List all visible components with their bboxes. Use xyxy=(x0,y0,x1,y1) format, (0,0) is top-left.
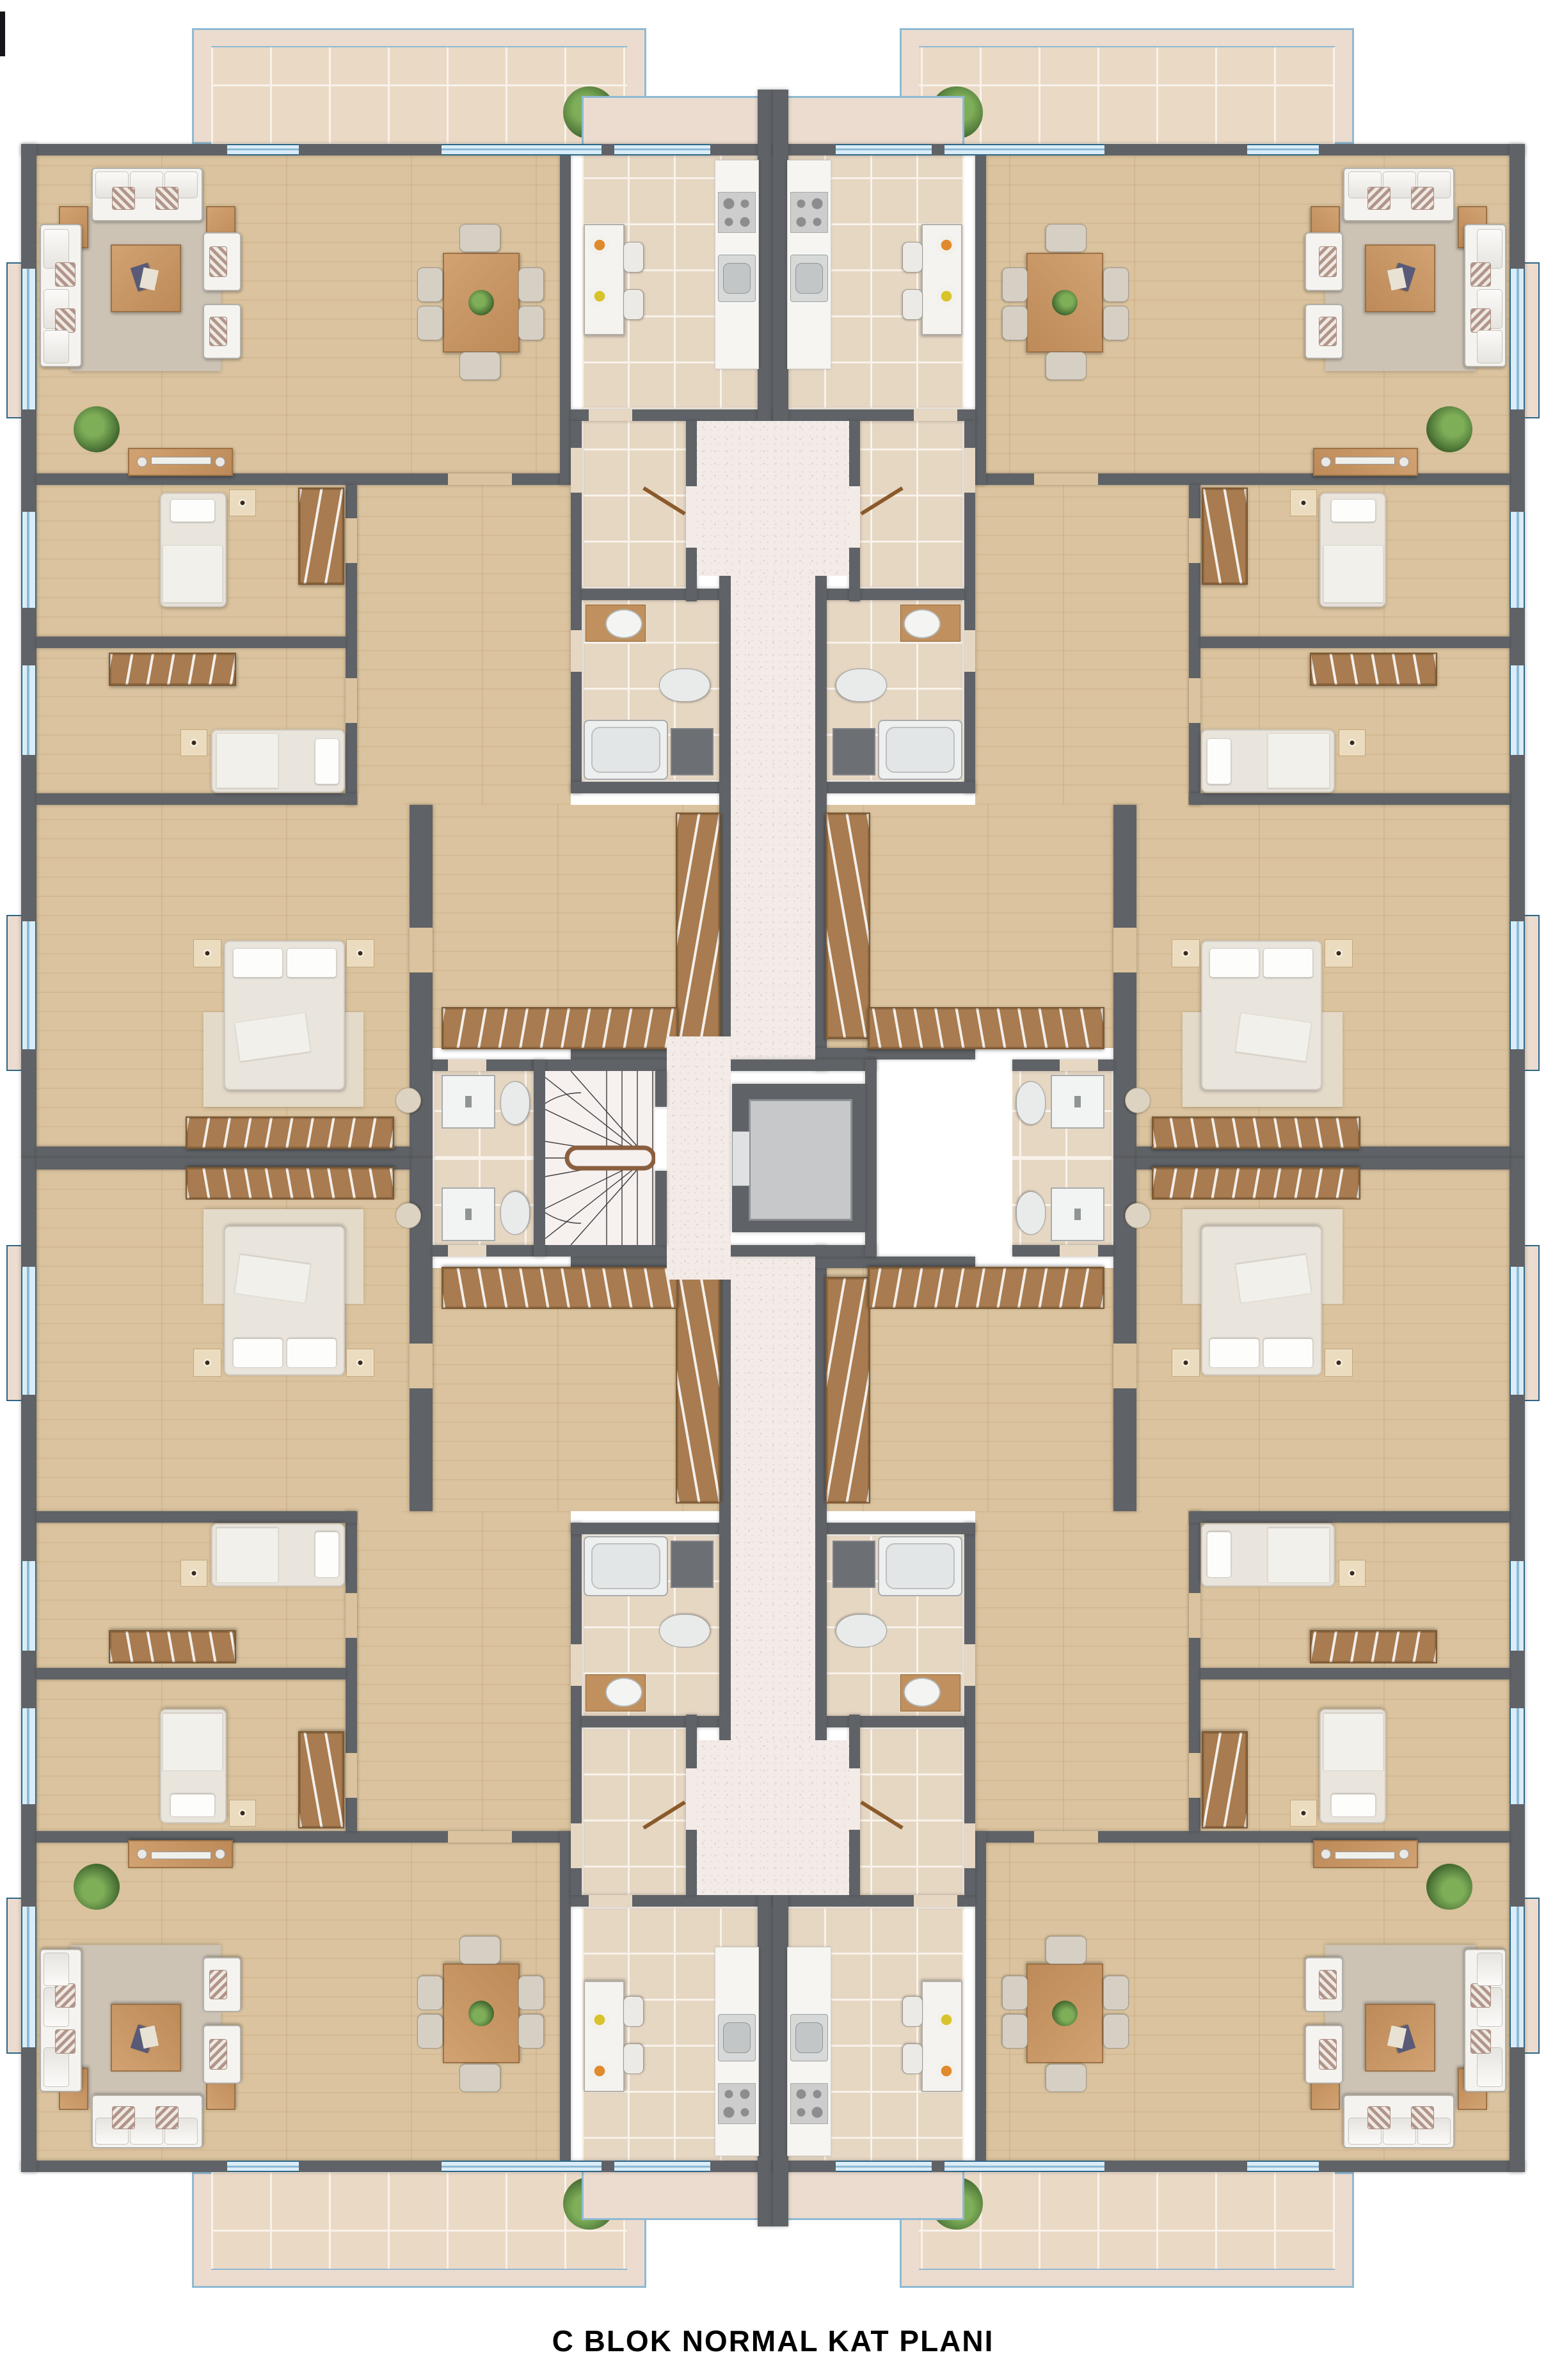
master-wardrobe xyxy=(1152,1116,1360,1149)
dining-chair xyxy=(1103,267,1129,302)
kitchen-sink-icon xyxy=(718,2014,756,2061)
dining-chair xyxy=(518,1976,544,2010)
double-bed xyxy=(224,940,345,1090)
wall-bedroom2-master xyxy=(1189,1511,1510,1523)
pillow xyxy=(1207,1532,1231,1578)
door-bedroom2 xyxy=(346,678,357,723)
wall-vestibule-bath xyxy=(582,589,719,600)
hall-floor xyxy=(357,485,571,805)
nightstand xyxy=(346,1349,374,1377)
sofa-chaise xyxy=(1464,224,1506,367)
living-plant-icon xyxy=(1426,406,1472,452)
tv-console xyxy=(1313,1840,1418,1868)
pillow xyxy=(1263,948,1313,978)
wall-kitchen-spine xyxy=(773,90,788,421)
double-bed xyxy=(224,1226,345,1376)
pillow xyxy=(233,948,283,978)
pillow xyxy=(315,1532,339,1578)
corridor-entry-hall-bottom xyxy=(697,1740,849,1895)
living-window-top-2 xyxy=(442,144,602,155)
kitchen-window xyxy=(614,144,710,155)
sofa-cushion xyxy=(44,330,69,363)
single-bed xyxy=(1319,1709,1386,1823)
wall-vestibule-bath xyxy=(582,1716,719,1727)
wall-corridor-west xyxy=(719,1245,731,1740)
tv-icon xyxy=(1335,457,1395,464)
hall-floor xyxy=(357,1511,571,1831)
apartment-entry-opening xyxy=(849,1768,860,1830)
dressing-wardrobe-horizontal xyxy=(442,1267,678,1309)
single-bed xyxy=(160,493,227,607)
sofa-pillow-striped xyxy=(1470,2029,1491,2054)
installation-shaft xyxy=(833,1541,875,1588)
blanket xyxy=(216,733,278,788)
installation-shaft xyxy=(833,728,875,775)
wall-living-kitchen xyxy=(975,1831,986,2161)
dressing-wardrobe-horizontal xyxy=(442,1007,678,1049)
fruit-plate-icon xyxy=(937,2061,956,2081)
wardrobe xyxy=(1202,488,1248,585)
wall-kitchen-spine xyxy=(773,1895,788,2226)
dining-chair xyxy=(459,2064,500,2092)
dining-chair xyxy=(1002,306,1028,340)
wall-living-kitchen xyxy=(560,1831,571,2161)
living-balcony-tile xyxy=(211,46,627,145)
floor-plan-canvas: C BLOK NORMAL KAT PLANI xyxy=(0,0,1546,2380)
sofa-three-seat xyxy=(92,168,203,221)
living-window-top-1 xyxy=(1247,144,1319,155)
wall-bedroom1-2 xyxy=(36,637,346,648)
dining-chair xyxy=(518,267,544,302)
staircase xyxy=(545,1071,655,1245)
armchair-pillow xyxy=(1319,1970,1337,1999)
kitchen-window xyxy=(614,2161,710,2172)
sofa-pillow-striped xyxy=(155,187,179,210)
armchair xyxy=(1305,1957,1343,2012)
kitchen-chair xyxy=(902,2043,923,2074)
living-side-balconette xyxy=(1522,1898,1540,2054)
door-living-hall xyxy=(448,1831,512,1843)
dining-centerpiece-plant-icon xyxy=(1052,2001,1078,2026)
core-wall-stairs-top xyxy=(534,1059,678,1071)
nightstand xyxy=(1325,1349,1353,1377)
corridor-strip-upper xyxy=(731,576,815,1071)
dining-centerpiece-plant-icon xyxy=(468,290,494,315)
core-wall-elevator-top xyxy=(731,1059,877,1071)
door-living-hall xyxy=(448,473,512,485)
sofa-pillow-striped xyxy=(112,187,135,210)
door-bedroom2 xyxy=(1189,678,1200,723)
tv-console xyxy=(1313,448,1418,476)
nightstand xyxy=(229,489,256,516)
coffee-table-book-icon xyxy=(139,267,159,290)
wardrobe xyxy=(109,1630,236,1663)
dining-table xyxy=(1026,1963,1103,2063)
stove-icon xyxy=(790,192,828,233)
single-bed xyxy=(1319,493,1386,607)
nightstand xyxy=(193,1349,221,1377)
nightstand xyxy=(193,939,221,967)
apartment-bottom-left xyxy=(0,1158,773,2316)
kitchen-chair xyxy=(623,1996,644,2027)
living-window-left xyxy=(1510,1907,1525,2047)
dining-chair xyxy=(518,2014,544,2049)
kitchen-balcony xyxy=(582,96,761,148)
sofa-pillow-striped xyxy=(1367,187,1391,210)
dressing-stool xyxy=(1125,1088,1151,1113)
dining-chair xyxy=(459,224,500,252)
wall-bedroom1-2 xyxy=(1200,637,1510,648)
core-wall-stairs-bottom xyxy=(534,1245,678,1257)
kitchen-chair xyxy=(623,2043,644,2074)
installation-shaft xyxy=(671,728,713,775)
bathroom-vanity xyxy=(900,605,960,642)
dining-chair xyxy=(417,306,443,340)
master-wardrobe xyxy=(186,1116,394,1149)
door-vestibule-hall xyxy=(571,448,582,493)
door-kitchen xyxy=(589,409,632,421)
pillow xyxy=(1209,948,1259,978)
door-bedroom2 xyxy=(346,1593,357,1638)
living-window-top-1 xyxy=(227,144,299,155)
bedroom2-window xyxy=(1510,1561,1525,1651)
dressing-stool xyxy=(1125,1203,1151,1228)
dining-chair xyxy=(417,267,443,302)
kitchen-balcony xyxy=(785,96,964,148)
living-balcony-tile xyxy=(919,46,1335,145)
dining-chair xyxy=(1103,306,1129,340)
kitchen-sink-icon xyxy=(790,255,828,302)
dressing-wardrobe-vertical xyxy=(676,1277,721,1503)
washbasin-icon xyxy=(904,609,941,639)
nightstand xyxy=(1172,1349,1200,1377)
living-window-top-2 xyxy=(944,144,1104,155)
single-bed xyxy=(211,1523,345,1587)
dressing-wardrobe-vertical xyxy=(825,813,870,1039)
door-masterbath xyxy=(448,1245,486,1257)
sofa-pillow-striped xyxy=(1470,262,1491,287)
tv-icon xyxy=(1335,1852,1395,1859)
dressing-wardrobe-horizontal xyxy=(868,1007,1104,1049)
door-vestibule-hall xyxy=(571,1823,582,1868)
door-master xyxy=(358,1511,403,1523)
dressing-stool xyxy=(395,1203,421,1228)
wardrobe xyxy=(1310,653,1437,686)
dining-table xyxy=(443,1963,520,2063)
dining-chair xyxy=(1046,224,1087,252)
blanket xyxy=(1235,1255,1312,1304)
master-side-balconette xyxy=(1522,915,1540,1071)
wardrobe xyxy=(1310,1630,1437,1663)
kitchen-chair xyxy=(902,1996,923,2027)
nightstand xyxy=(229,1800,256,1827)
blanket xyxy=(163,545,223,603)
dining-centerpiece-plant-icon xyxy=(468,2001,494,2026)
bedroom2-window xyxy=(1510,665,1525,755)
pillow xyxy=(170,1794,215,1817)
dining-chair xyxy=(1046,1936,1087,1964)
fruit-plate-icon xyxy=(937,287,956,306)
wardrobe xyxy=(109,653,236,686)
kitchen-chair xyxy=(902,242,923,273)
sofa-pillow-striped xyxy=(55,1983,76,2008)
door-living-hall xyxy=(1034,473,1098,485)
elevator-door-icon xyxy=(732,1131,750,1186)
dining-table xyxy=(1026,253,1103,353)
sofa-chaise xyxy=(40,224,82,367)
bathroom-vanity xyxy=(586,1674,646,1711)
apartment-entry-opening xyxy=(686,486,697,548)
door-bedroom2 xyxy=(1189,1593,1200,1638)
sofa-chaise xyxy=(1464,1949,1506,2092)
console-knob-icon xyxy=(215,1849,225,1859)
armchair xyxy=(203,232,241,291)
living-plant-icon xyxy=(1426,1864,1472,1910)
blanket xyxy=(1235,1013,1312,1062)
master-wardrobe xyxy=(186,1167,394,1200)
nightstand xyxy=(1290,489,1317,516)
coffee-table xyxy=(1365,2004,1435,2072)
kitchen-sink-icon xyxy=(790,2014,828,2061)
wall-vestibule-bath xyxy=(827,1716,964,1727)
apartment-entry-opening xyxy=(686,1768,697,1830)
coffee-table xyxy=(111,244,181,312)
living-balcony-tile xyxy=(211,2171,627,2270)
living-window-left xyxy=(1510,269,1525,409)
pillow xyxy=(233,1338,283,1368)
dining-centerpiece-plant-icon xyxy=(1052,290,1078,315)
bedroom1-window xyxy=(1510,512,1525,608)
master-window xyxy=(21,1267,36,1395)
core-wall-elevator-east xyxy=(865,1059,877,1257)
door-master xyxy=(1143,793,1188,805)
hall-floor xyxy=(975,485,1189,805)
wall-dressing-bottom xyxy=(815,1048,975,1059)
sofa-three-seat xyxy=(1343,168,1454,221)
fruit-plate-icon xyxy=(590,235,609,255)
console-knob-icon xyxy=(137,457,147,467)
sofa-three-seat xyxy=(1343,2095,1454,2148)
wall-bedroom1-2 xyxy=(36,1668,346,1679)
master-window xyxy=(1510,1267,1525,1395)
pillow xyxy=(1331,499,1376,522)
corridor-strip-lower xyxy=(731,1245,815,1740)
core-wall-elevator-bottom xyxy=(731,1245,877,1257)
door-bathroom xyxy=(964,1644,975,1686)
pillow xyxy=(287,1338,337,1368)
wall-bedroom1-2 xyxy=(1200,1668,1510,1679)
corridor-entry-hall-top xyxy=(697,421,849,576)
apartment-bottom-right xyxy=(773,1158,1546,2316)
sofa-cushion xyxy=(1477,1953,1502,1986)
shower-icon xyxy=(442,1187,495,1241)
living-side-balconette xyxy=(1522,262,1540,418)
double-bed xyxy=(1201,1226,1322,1376)
pillow xyxy=(1263,1338,1313,1368)
shower-icon xyxy=(1051,1187,1104,1241)
dining-chair xyxy=(518,306,544,340)
armchair-pillow xyxy=(209,1970,227,1999)
nightstand xyxy=(180,1560,207,1587)
tv-console xyxy=(128,448,233,476)
single-bed xyxy=(1201,1523,1335,1587)
pillow xyxy=(287,948,337,978)
living-window-top-2 xyxy=(944,2161,1104,2172)
living-window-top-1 xyxy=(1247,2161,1319,2172)
double-bed xyxy=(1201,940,1322,1090)
nightstand xyxy=(1290,1800,1317,1827)
sofa-pillow-striped xyxy=(1470,308,1491,333)
door-bedroom1 xyxy=(1189,518,1200,563)
toilet-icon xyxy=(836,669,887,702)
kitchen-balcony xyxy=(785,2168,964,2220)
sofa-pillow-striped xyxy=(1411,2106,1434,2129)
armchair-pillow xyxy=(209,246,227,277)
tv-icon xyxy=(151,457,211,464)
nightstand xyxy=(1172,939,1200,967)
washbasin-icon xyxy=(605,1678,642,1707)
armchair-pillow xyxy=(209,317,227,346)
bedroom1-window xyxy=(1510,1708,1525,1804)
dressing-wardrobe-vertical xyxy=(676,813,721,1039)
blanket xyxy=(1323,545,1383,603)
living-plant-icon xyxy=(74,406,120,452)
kitchen-balcony xyxy=(582,2168,761,2220)
door-dressing xyxy=(410,1344,433,1388)
console-knob-icon xyxy=(1321,457,1331,467)
living-window-left xyxy=(21,1907,36,2047)
dining-chair xyxy=(1103,2014,1129,2049)
armchair-pillow xyxy=(1319,2039,1337,2070)
bedroom2-window xyxy=(21,665,36,755)
blanket xyxy=(234,1255,311,1304)
armchair xyxy=(203,1957,241,2012)
plan-caption: C BLOK NORMAL KAT PLANI xyxy=(0,2324,1546,2358)
dining-chair xyxy=(1103,1976,1129,2010)
fruit-plate-icon xyxy=(590,2010,609,2029)
dining-chair xyxy=(417,1976,443,2010)
door-living-hall xyxy=(1034,1831,1098,1843)
stove-icon xyxy=(718,192,756,233)
sofa-pillow-striped xyxy=(155,2106,179,2129)
wardrobe xyxy=(298,488,344,585)
pillow xyxy=(1331,1794,1376,1817)
wall-bath-bottom xyxy=(571,782,731,793)
dining-chair xyxy=(459,1936,500,1964)
sofa-three-seat xyxy=(92,2095,203,2148)
door-masterbath xyxy=(1060,1059,1098,1071)
bedroom2-window xyxy=(21,1561,36,1651)
nightstand xyxy=(346,939,374,967)
door-dressing xyxy=(1113,928,1136,972)
pillow xyxy=(315,738,339,784)
bedroom1-window xyxy=(21,1708,36,1804)
door-bedroom1 xyxy=(346,1753,357,1798)
door-kitchen xyxy=(914,409,957,421)
stair-wall-east-lower xyxy=(655,1171,667,1245)
kitchen-window xyxy=(836,144,932,155)
door-vestibule-hall xyxy=(964,1823,975,1868)
armchair xyxy=(203,304,241,359)
fruit-plate-icon xyxy=(937,2010,956,2029)
wall-kitchen-spine xyxy=(758,90,773,421)
nightstand xyxy=(1325,939,1353,967)
armchair-pillow xyxy=(1319,246,1337,277)
wall-bedroom2-master xyxy=(36,1511,357,1523)
door-bathroom xyxy=(571,1644,582,1686)
coffee-table-book-icon xyxy=(139,2026,159,2049)
wall-bedroom2-master xyxy=(36,793,357,805)
bathtub-icon xyxy=(878,1536,962,1596)
bathtub-icon xyxy=(878,720,962,780)
tv-console xyxy=(128,1840,233,1868)
kitchen-sink-icon xyxy=(718,255,756,302)
wall-bath-bottom xyxy=(815,1523,975,1534)
shower-icon xyxy=(442,1075,495,1129)
sofa-pillow-striped xyxy=(1470,1983,1491,2008)
dining-table xyxy=(443,253,520,353)
wall-living-kitchen xyxy=(975,155,986,485)
door-dressing xyxy=(410,928,433,972)
stair-wall-east-upper xyxy=(655,1071,667,1107)
blanket xyxy=(1323,1713,1383,1771)
door-bedroom1 xyxy=(346,518,357,563)
stove-icon xyxy=(790,2083,828,2124)
wall-vestibule-bath xyxy=(827,589,964,600)
dining-chair xyxy=(1046,2064,1087,2092)
toilet-icon xyxy=(500,1081,530,1125)
shower-icon xyxy=(1051,1075,1104,1129)
wardrobe xyxy=(298,1731,344,1829)
washbasin-icon xyxy=(605,609,642,639)
console-knob-icon xyxy=(1399,457,1409,467)
coffee-table xyxy=(111,2004,181,2072)
door-kitchen xyxy=(589,1895,632,1907)
coffee-table xyxy=(1365,244,1435,312)
sofa-pillow-striped xyxy=(55,262,76,287)
door-masterbath xyxy=(448,1059,486,1071)
bathroom-vanity xyxy=(586,605,646,642)
sofa-pillow-striped xyxy=(55,308,76,333)
installation-shaft xyxy=(671,1541,713,1588)
dressing-stool xyxy=(395,1088,421,1113)
console-knob-icon xyxy=(215,457,225,467)
fruit-plate-icon xyxy=(937,235,956,255)
sofa-pillow-striped xyxy=(1411,187,1434,210)
toilet-icon xyxy=(1016,1191,1046,1235)
kitchen-chair xyxy=(623,242,644,273)
kitchen-window xyxy=(836,2161,932,2172)
dressing-wardrobe-vertical xyxy=(825,1277,870,1503)
blanket xyxy=(216,1528,278,1583)
fruit-plate-icon xyxy=(590,2061,609,2081)
toilet-icon xyxy=(836,1614,887,1647)
master-side-balconette xyxy=(1522,1245,1540,1401)
dining-chair xyxy=(1002,2014,1028,2049)
door-master xyxy=(1143,1511,1188,1523)
pillow xyxy=(1209,1338,1259,1368)
master-window xyxy=(1510,921,1525,1049)
dressing-wardrobe-horizontal xyxy=(868,1267,1104,1309)
single-bed xyxy=(1201,729,1335,793)
single-bed xyxy=(160,1709,227,1823)
wall-bath-bottom xyxy=(815,782,975,793)
toilet-icon xyxy=(1016,1081,1046,1125)
single-bed xyxy=(211,729,345,793)
apartment-top-left xyxy=(0,0,773,1158)
toilet-icon xyxy=(659,1614,710,1647)
armchair xyxy=(1305,232,1343,291)
